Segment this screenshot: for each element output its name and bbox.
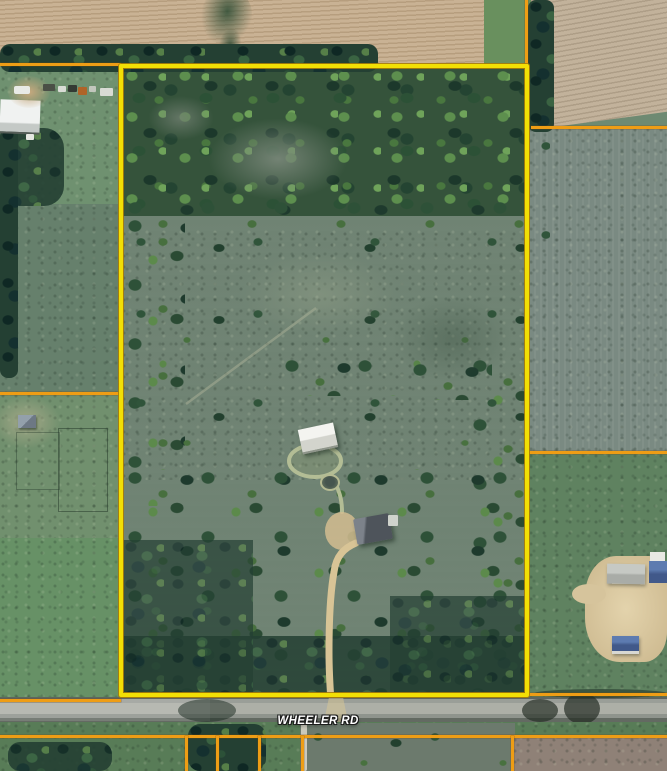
parcel-boundary xyxy=(119,64,529,697)
cadastral-line xyxy=(216,736,219,771)
junk-item-2 xyxy=(58,86,66,92)
roadside-tree-1 xyxy=(522,699,558,722)
cadastral-line xyxy=(0,392,121,395)
white-hut xyxy=(26,134,34,140)
cadastral-line xyxy=(0,63,121,66)
road-label: WHEELER RD xyxy=(252,715,384,730)
road-tree-shadow-1 xyxy=(178,699,236,722)
south-field-brown xyxy=(512,736,667,771)
cadastral-line xyxy=(529,693,667,696)
farm-barn-grey xyxy=(607,564,645,585)
junk-item-6 xyxy=(100,88,113,96)
cadastral-line xyxy=(531,126,667,129)
cadastral-line xyxy=(511,736,514,771)
white-truck xyxy=(14,86,30,94)
cadastral-line xyxy=(258,736,261,771)
cadastral-line xyxy=(0,735,667,738)
south-trees-1 xyxy=(188,724,266,771)
farm-building-blue-1 xyxy=(649,561,667,583)
junk-item-1 xyxy=(43,84,55,91)
cadastral-line xyxy=(528,451,667,454)
map-canvas[interactable]: WHEELER RD xyxy=(0,0,667,771)
farm-building-blue-2 xyxy=(612,636,639,654)
cadastral-line xyxy=(301,736,304,771)
shed-left xyxy=(18,415,36,428)
junk-item-3 xyxy=(68,85,77,92)
cadastral-line xyxy=(0,699,121,702)
south-scrub-mid xyxy=(300,723,515,771)
cadastral-line xyxy=(525,0,528,68)
junk-item-5 xyxy=(89,86,96,92)
junk-item-4 xyxy=(78,87,87,95)
farm-shed-white xyxy=(650,552,665,561)
cadastral-line xyxy=(185,736,188,771)
south-trees-2 xyxy=(8,742,112,771)
farmstead-yard-arm xyxy=(572,584,606,604)
